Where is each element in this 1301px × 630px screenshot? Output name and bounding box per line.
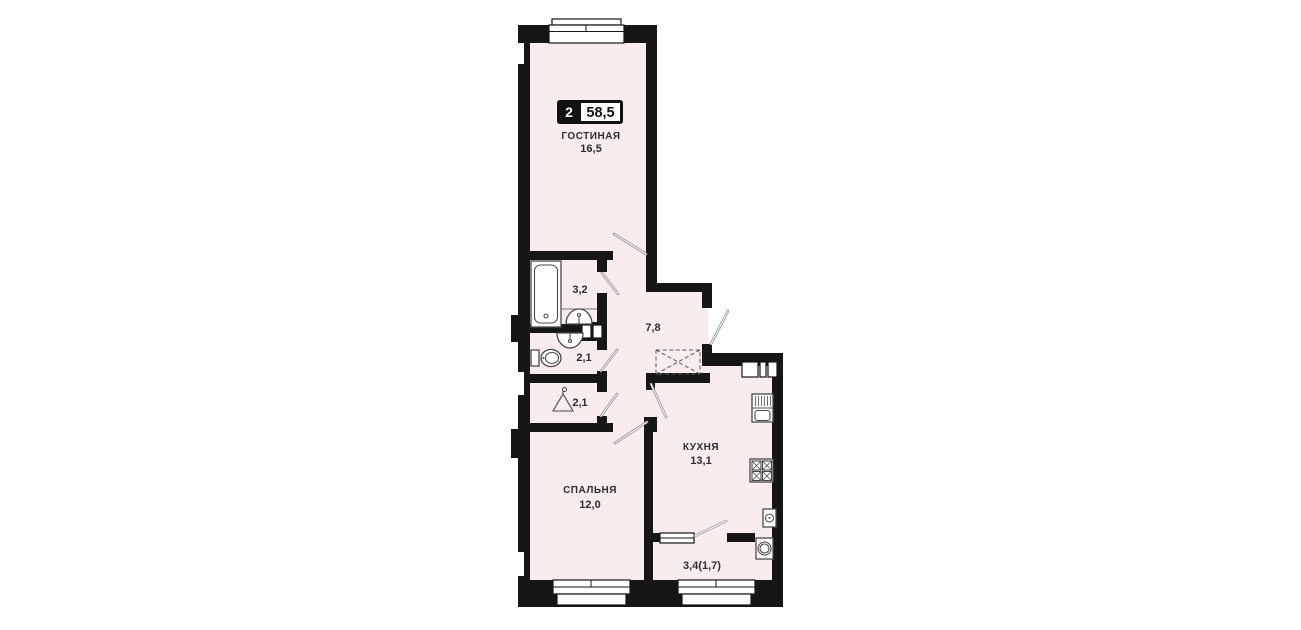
badge-room-count: 2 [565, 104, 573, 120]
water-heater-icon [763, 509, 776, 527]
area-closet: 2,1 [572, 397, 587, 409]
window-sill [557, 594, 626, 605]
window-balcony-block [660, 533, 694, 543]
washing-machine-icon [756, 538, 773, 559]
vent-shaft-icon [768, 362, 777, 377]
label-living-room: ГОСТИНАЯ [561, 131, 620, 142]
vent-shaft-icon [760, 362, 766, 377]
area-bathroom: 3,2 [572, 284, 587, 296]
toilet-icon [531, 350, 561, 367]
stove-icon [750, 459, 773, 482]
floorplan-stage: 2 58,5 ГОСТИНАЯ 16,5 3,2 7,8 2,1 2,1 СПА… [0, 0, 1301, 630]
window-sill [682, 594, 751, 605]
area-living-room: 16,5 [580, 143, 601, 155]
label-bedroom: СПАЛЬНЯ [563, 485, 617, 496]
window-living-room [549, 19, 624, 43]
floorplan-svg: 2 58,5 ГОСТИНАЯ 16,5 3,2 7,8 2,1 2,1 СПА… [0, 0, 1301, 630]
kitchen-sink-icon [752, 394, 773, 422]
badge-total-area: 58,5 [586, 105, 614, 121]
area-hallway: 7,8 [645, 322, 660, 334]
vent-shaft-icon [593, 325, 602, 338]
window-bedroom [553, 580, 630, 605]
area-wc: 2,1 [576, 352, 591, 364]
label-kitchen: КУХНЯ [683, 442, 719, 453]
bathtub-icon [531, 261, 561, 327]
vent-shaft-icon [742, 362, 758, 377]
door-entry [711, 311, 728, 344]
window-balcony [678, 580, 755, 605]
area-bedroom: 12,0 [579, 499, 600, 511]
area-badge: 2 58,5 [557, 100, 623, 124]
area-balcony: 3,4(1,7) [683, 560, 721, 572]
window-sill [552, 19, 621, 25]
area-kitchen: 13,1 [690, 455, 711, 467]
